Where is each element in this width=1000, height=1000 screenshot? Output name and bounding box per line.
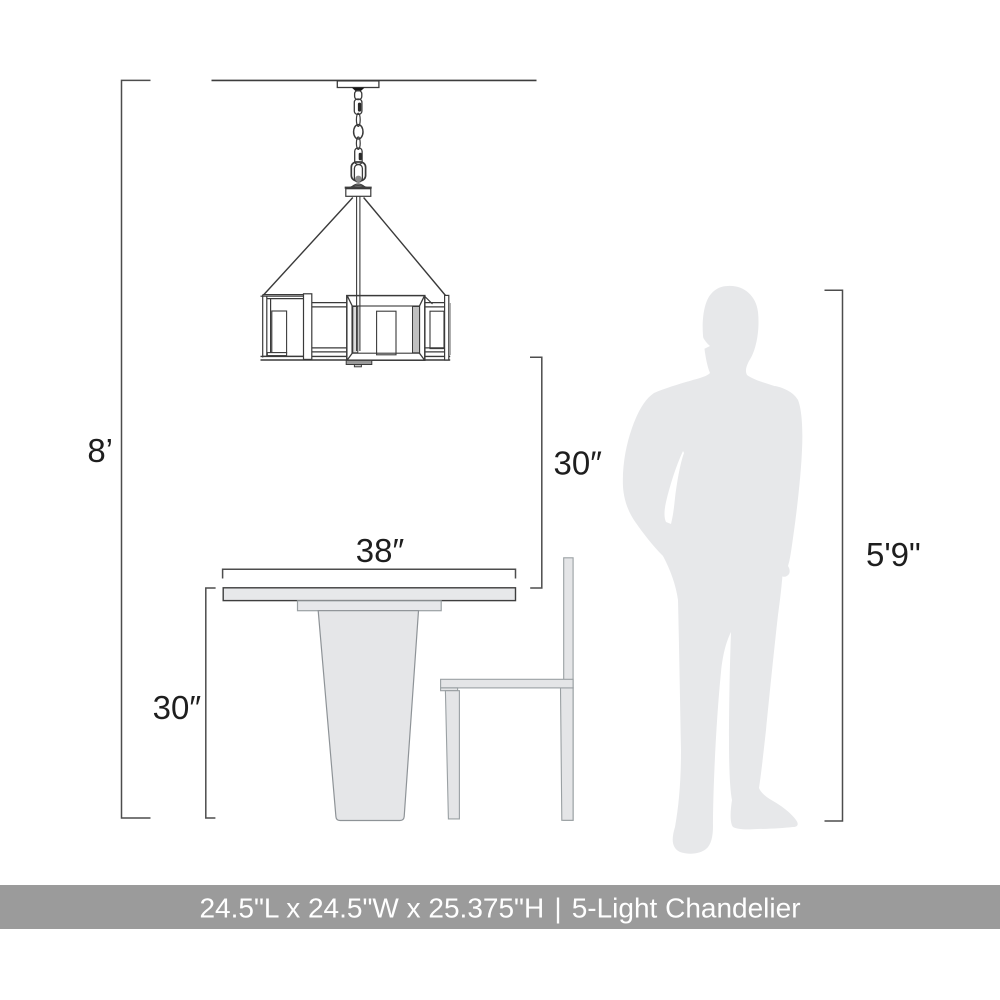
svg-text:38″: 38″: [356, 532, 405, 569]
svg-text:30″: 30″: [554, 445, 603, 482]
svg-text:8’: 8’: [87, 432, 113, 469]
svg-text:24.5"L x 24.5"W x 25.375"H |: 24.5"L x 24.5"W x 25.375"H | 5-Light Cha…: [199, 893, 800, 924]
svg-text:5'9": 5'9": [866, 536, 921, 573]
svg-text:30″: 30″: [153, 689, 202, 726]
